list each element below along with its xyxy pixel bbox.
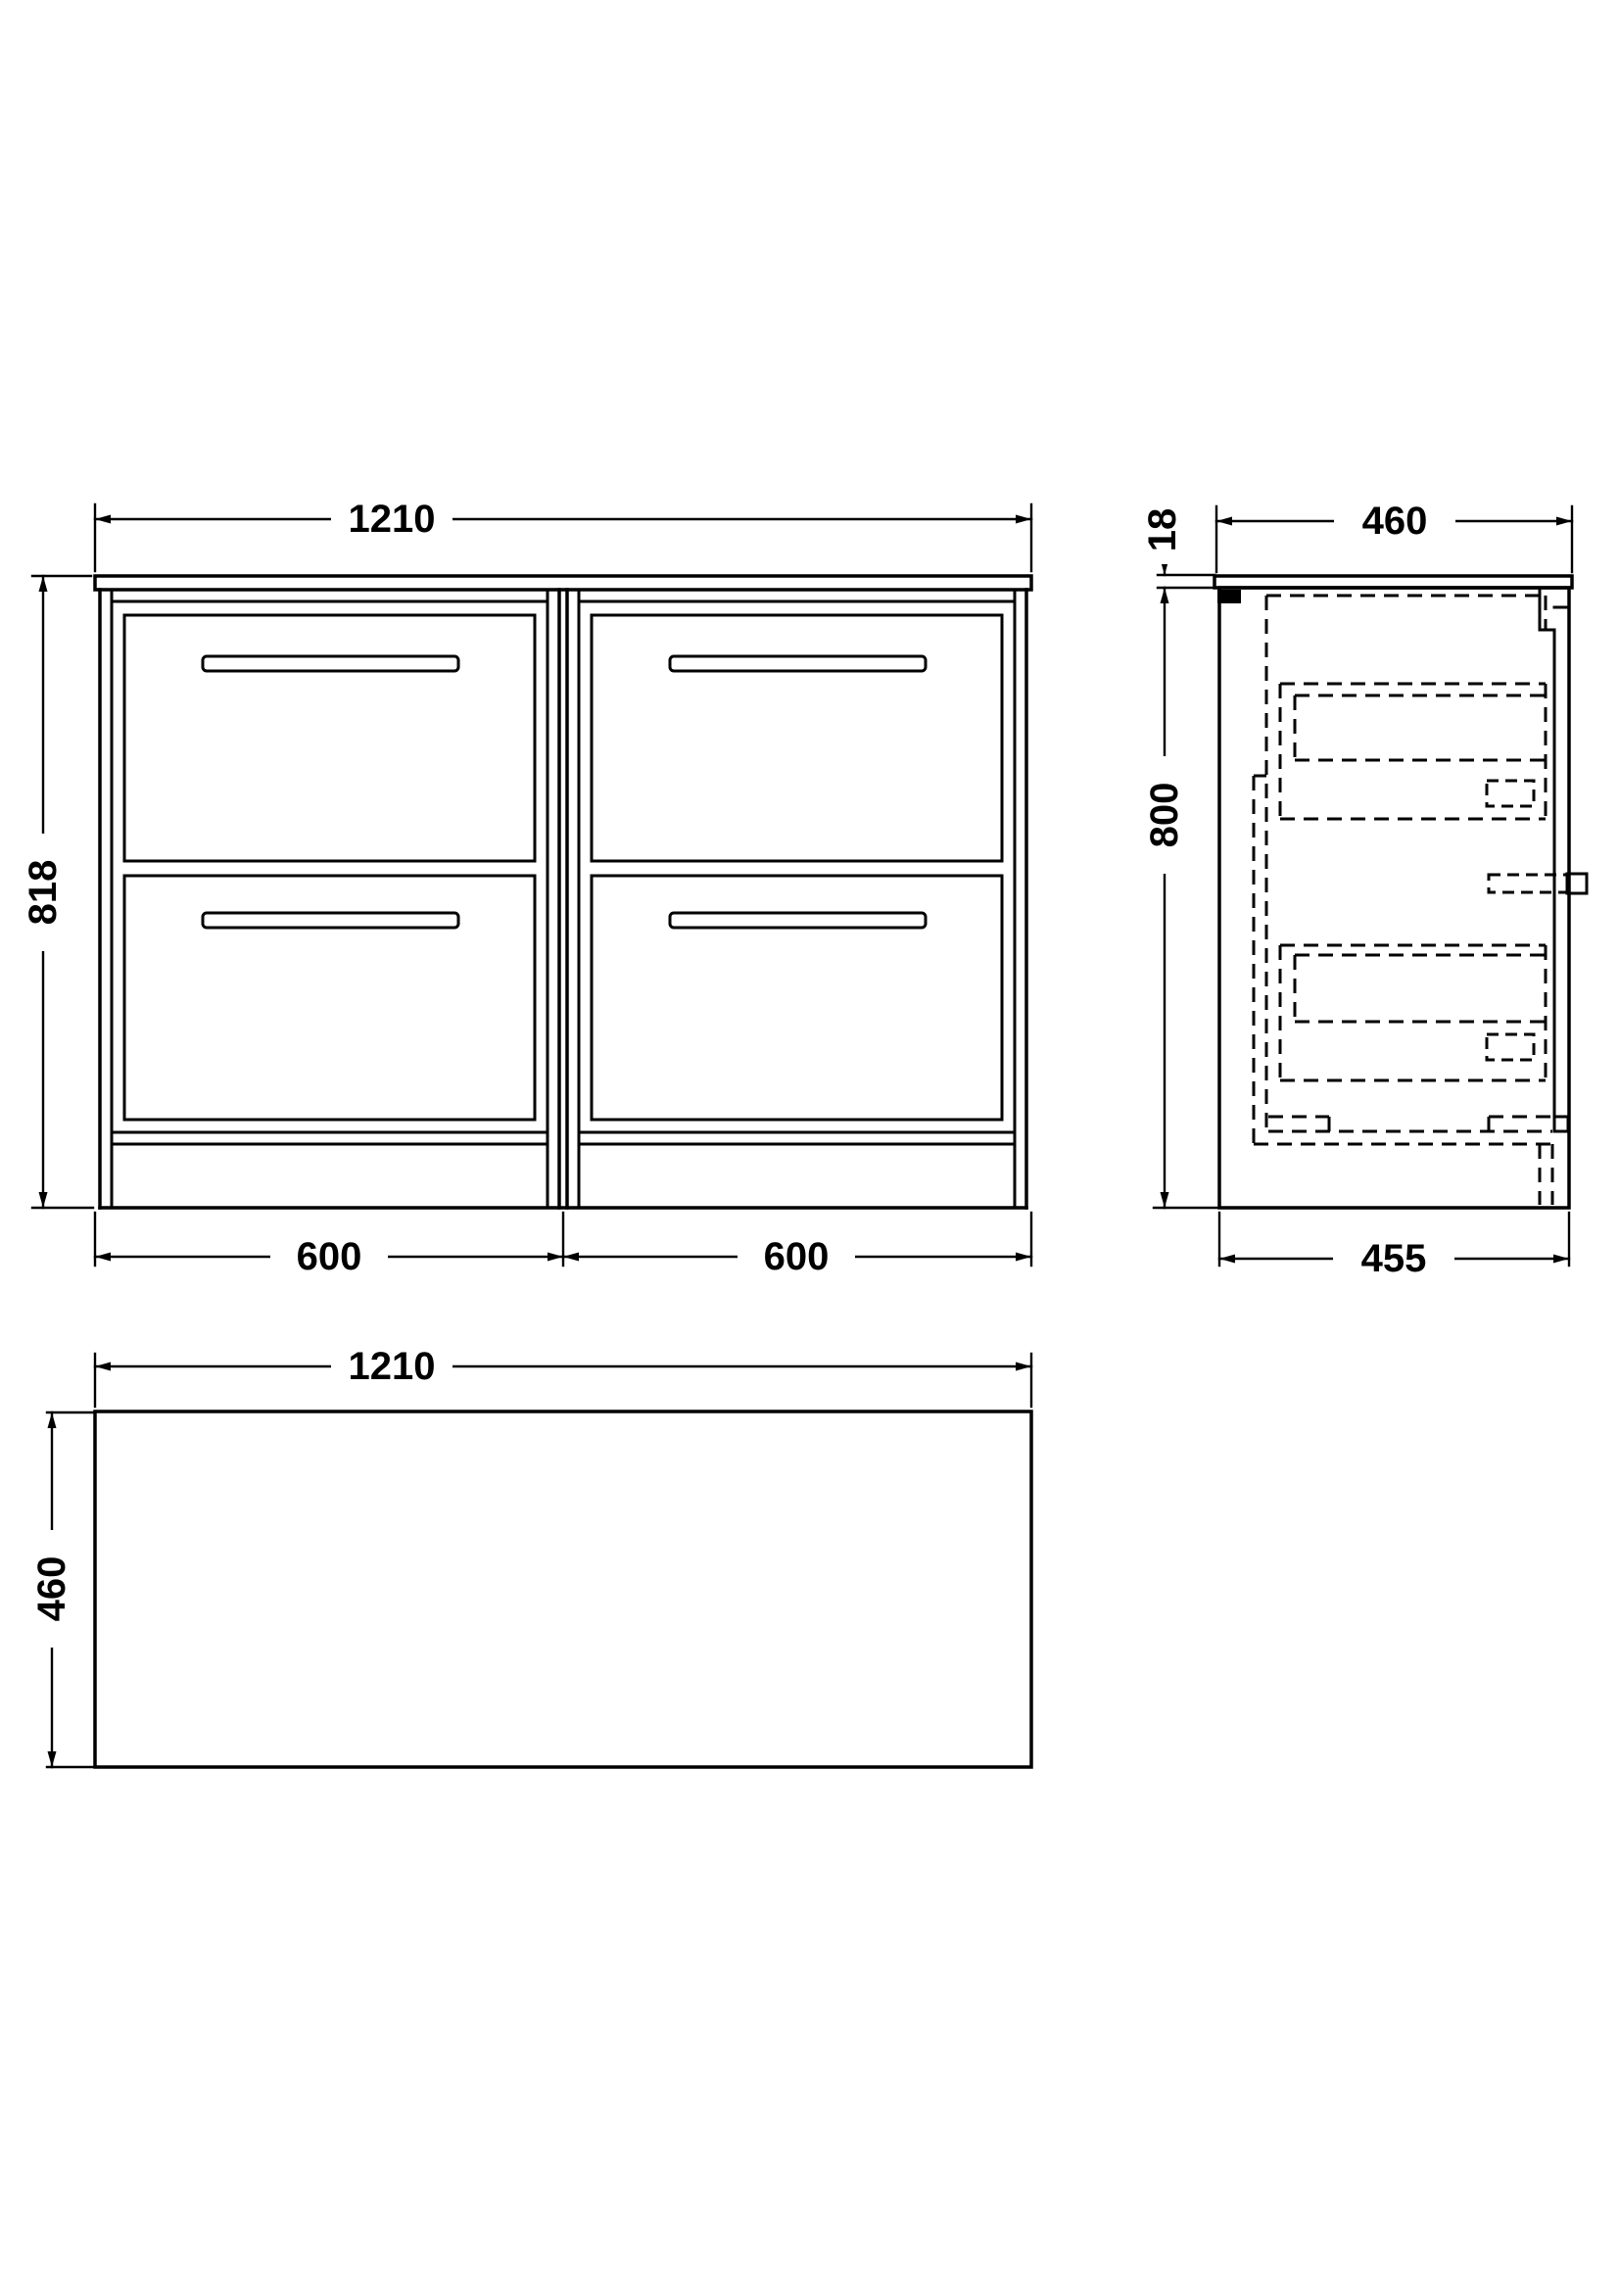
side-worktop bbox=[1214, 576, 1572, 588]
front-view: 1210 818 bbox=[22, 498, 1031, 1278]
front-right-module-label: 600 bbox=[764, 1235, 830, 1278]
drawer-front-top-right bbox=[592, 615, 1002, 861]
front-module-dimensions: 600 600 bbox=[95, 1213, 1031, 1278]
plan-depth-label: 460 bbox=[30, 1556, 73, 1622]
front-width-label: 1210 bbox=[349, 498, 436, 541]
front-width-dimension: 1210 bbox=[95, 498, 1031, 571]
side-carcass bbox=[1217, 588, 1587, 1208]
drawer-handle-bottom-left bbox=[203, 913, 458, 928]
plan-worktop-outline bbox=[95, 1411, 1031, 1767]
technical-drawing-canvas: 1210 818 bbox=[0, 0, 1619, 2291]
side-bottom-drawer-box bbox=[1280, 945, 1546, 1080]
front-drawers bbox=[124, 615, 1002, 1120]
plan-width-label: 1210 bbox=[349, 1345, 436, 1388]
drawer-handle-bottom-right bbox=[670, 913, 926, 928]
drawer-handle-top-right bbox=[670, 656, 926, 671]
plan-view: 1210 460 bbox=[30, 1345, 1031, 1767]
technical-drawing-page: 1210 818 bbox=[0, 0, 1619, 2291]
front-carcass bbox=[100, 590, 1026, 1208]
side-base-depth-label: 455 bbox=[1361, 1237, 1427, 1280]
side-height-dimension: 800 bbox=[1143, 588, 1219, 1208]
front-height-dimension: 818 bbox=[22, 576, 93, 1208]
side-depth-dimension: 460 bbox=[1216, 500, 1572, 572]
side-height-label: 800 bbox=[1143, 783, 1186, 848]
side-worktop-thickness-label: 18 bbox=[1141, 508, 1184, 552]
plan-depth-dimension: 460 bbox=[30, 1412, 95, 1767]
plan-width-dimension: 1210 bbox=[95, 1345, 1031, 1407]
side-worktop-thickness-dimension: 18 bbox=[1141, 490, 1217, 588]
side-view: 460 18 800 bbox=[1141, 490, 1587, 1280]
drawer-handle-top-left bbox=[203, 656, 458, 671]
side-base-depth-dimension: 455 bbox=[1219, 1213, 1569, 1280]
side-top-drawer-runner bbox=[1487, 781, 1534, 806]
side-depth-label: 460 bbox=[1362, 500, 1428, 543]
side-base-hidden bbox=[1254, 1117, 1554, 1205]
side-back-rail-bottom bbox=[1554, 1117, 1568, 1131]
side-fixing-bracket bbox=[1217, 590, 1241, 603]
front-height-label: 818 bbox=[22, 860, 65, 926]
side-top-drawer-box bbox=[1280, 684, 1546, 819]
side-bottom-drawer-runner bbox=[1487, 1034, 1534, 1060]
drawer-front-top-left bbox=[124, 615, 535, 861]
front-worktop bbox=[95, 576, 1031, 590]
side-hidden-lines bbox=[1254, 596, 1567, 1205]
front-left-module-label: 600 bbox=[297, 1235, 362, 1278]
